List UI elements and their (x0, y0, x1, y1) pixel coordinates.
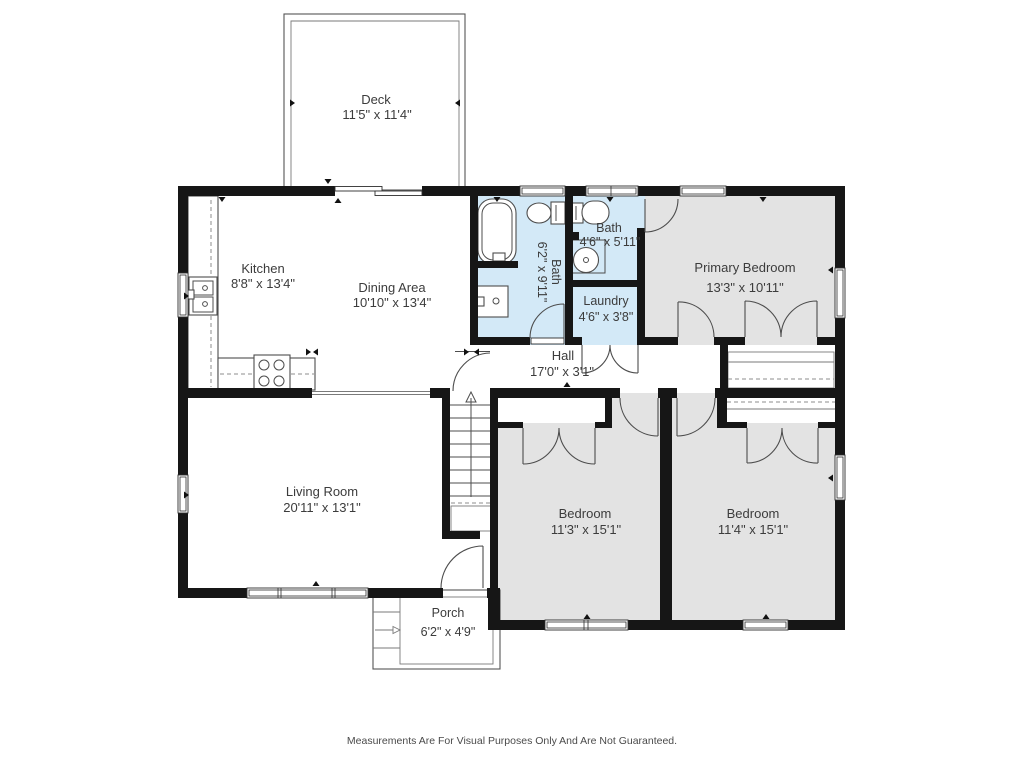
round-sink-icon (574, 248, 599, 273)
window-bedroom-left (545, 620, 628, 630)
window-primary-top (680, 186, 726, 196)
understairs-storage (451, 506, 491, 531)
room-dims-hall: 17'0" x 3'1" (530, 364, 594, 379)
bedroom-right-closet-fill (727, 396, 835, 423)
disclaimer-text: Measurements Are For Visual Purposes Onl… (347, 735, 677, 747)
room-label-porch: Porch (432, 606, 465, 620)
window-bath-ensuite (586, 186, 638, 196)
room-dims-bath-ensuite: 4'6" x 5'11" (580, 235, 641, 249)
floor-plan: Deck 11'5" x 11'4" Kitchen 8'8" x 13'4" … (0, 0, 1024, 768)
stove-icon (254, 355, 290, 392)
room-dims-primary-bedroom: 13'3" x 10'11" (706, 280, 784, 295)
toilet-icon (527, 203, 551, 223)
room-dims-dining: 10'10" x 13'4" (353, 295, 432, 310)
room-dims-porch: 6'2" x 4'9" (421, 625, 476, 639)
room-label-living-room: Living Room (286, 484, 358, 499)
door-hall-entry (453, 352, 490, 392)
kitchen-fixtures (186, 196, 315, 392)
door-front-entry (441, 546, 483, 588)
room-label-bedroom-right: Bedroom (727, 506, 780, 521)
room-label-bedroom-left: Bedroom (559, 506, 612, 521)
room-label-deck: Deck (361, 92, 391, 107)
window-bedroom-right (743, 620, 788, 630)
floor-plan-page: Deck 11'5" x 11'4" Kitchen 8'8" x 13'4" … (0, 0, 1024, 768)
room-label-bath-ensuite: Bath (596, 221, 622, 235)
room-dims-bedroom-left: 11'3" x 15'1" (551, 522, 622, 537)
ensuite-toilet-icon (572, 203, 583, 223)
open-floor-divider (312, 392, 430, 395)
room-label-laundry: Laundry (583, 294, 629, 308)
window-living-front (247, 588, 368, 598)
sliding-door-panel-right (375, 191, 422, 196)
bath-door-threshold (531, 338, 564, 344)
room-dims-laundry: 4'6" x 3'8" (579, 310, 634, 324)
window-bath-main (520, 186, 565, 196)
room-dims-bath-main: 6'2" x 9'11" (535, 242, 549, 303)
room-label-kitchen: Kitchen (241, 261, 284, 276)
room-dims-kitchen: 8'8" x 13'4" (231, 276, 295, 291)
room-label-dining: Dining Area (358, 280, 426, 295)
window-primary-right (835, 268, 845, 318)
room-dims-deck: 11'5" x 11'4" (342, 107, 412, 122)
room-dims-bedroom-right: 11'4" x 15'1" (718, 522, 789, 537)
staircase (450, 392, 492, 531)
sliding-door-panel-left (335, 187, 382, 192)
room-label-primary-bedroom: Primary Bedroom (694, 260, 795, 275)
primary-closet-shelf (728, 352, 834, 388)
bedroom-left-closet-fill (498, 396, 605, 423)
room-dims-living-room: 20'11" x 13'1" (283, 500, 361, 515)
window-bedroom-right-side (835, 455, 845, 500)
room-label-hall: Hall (552, 348, 575, 363)
room-label-bath-main: Bath (549, 259, 563, 285)
